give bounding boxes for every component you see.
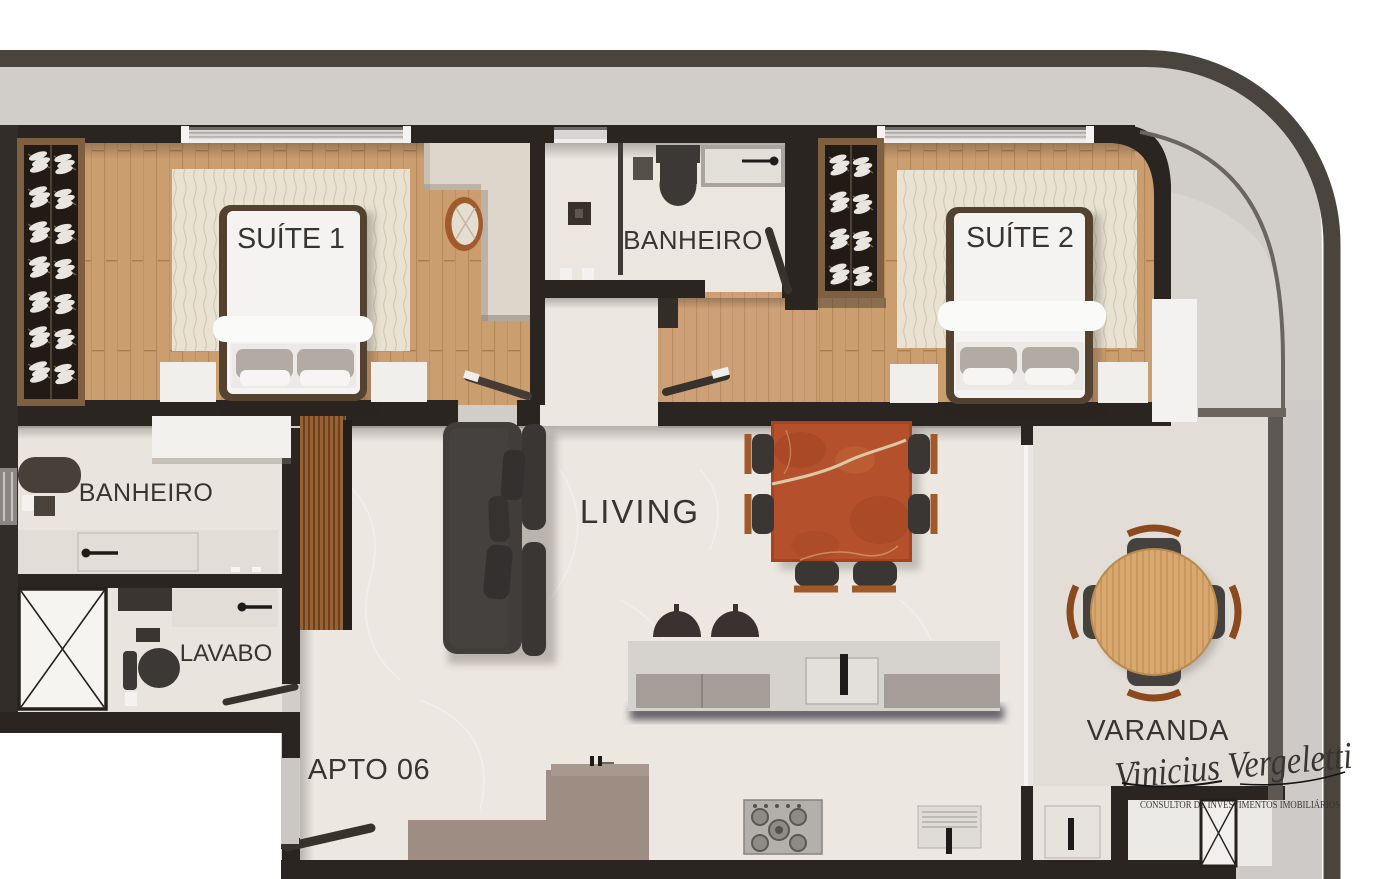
svg-text:CONSULTOR DE INVESTIMENTOS IMO: CONSULTOR DE INVESTIMENTOS IMOBILIÁRIOS [1140,799,1340,811]
svg-text:SUÍTE 1: SUÍTE 1 [237,223,345,255]
svg-text:BANHEIRO: BANHEIRO [79,479,214,507]
svg-text:APTO 06: APTO 06 [308,754,430,786]
svg-text:LAVABO: LAVABO [180,640,272,667]
svg-text:LIVING: LIVING [580,493,700,530]
svg-text:BANHEIRO: BANHEIRO [623,225,763,255]
svg-text:SUÍTE 2: SUÍTE 2 [966,222,1074,254]
svg-text:VARANDA: VARANDA [1087,715,1230,747]
